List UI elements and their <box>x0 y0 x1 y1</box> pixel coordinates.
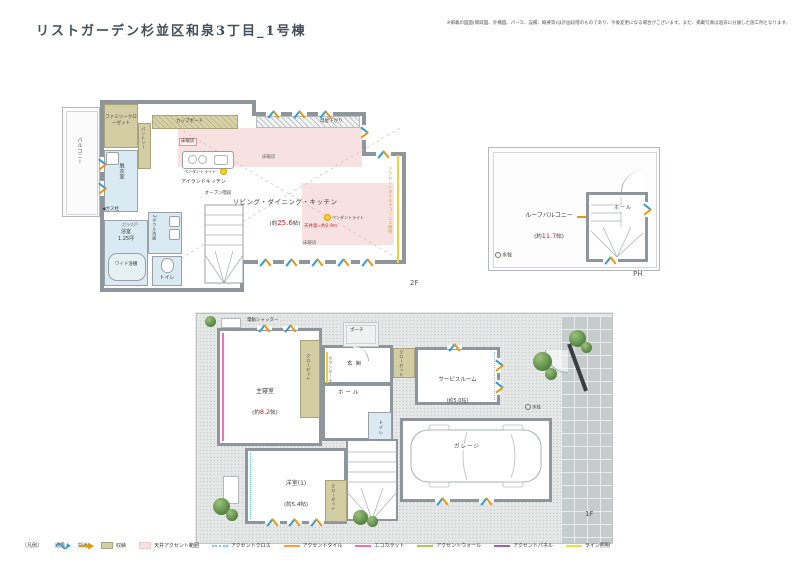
window-marker <box>257 326 272 330</box>
dressing-room-label: 脱衣室 <box>118 163 125 199</box>
garage-label: ガレージ <box>453 444 481 451</box>
window-marker <box>376 152 391 156</box>
western-room-size: (約5.4帖) <box>284 502 308 508</box>
window-marker <box>265 520 280 524</box>
tree <box>545 368 557 380</box>
floor-heating-label: 床暖房 <box>303 241 317 247</box>
balcony-label: バルコニー <box>76 137 83 189</box>
hall-1f-label: ホール <box>338 390 361 397</box>
daylight-arrow-icon <box>78 542 95 550</box>
window-marker <box>266 112 281 116</box>
legend-item-daylight: 採光 <box>78 542 88 549</box>
floorplan-sheet: リストガーデン杉並区和泉3丁目_1号棟 ※掲載の図面(間取図、外構図、パース、設… <box>0 0 800 566</box>
window-marker <box>309 520 324 524</box>
ldk-size: (約25.6帖) <box>270 221 301 227</box>
ph-hall-label: ホール <box>613 205 633 212</box>
legend-label: アクセントタイル <box>303 542 343 549</box>
tap-icon <box>525 404 531 410</box>
pendant-light-label-kitchen: ペンダントライト <box>184 169 216 174</box>
service-room-name: サービスルーム <box>438 377 476 383</box>
porch-label: ポーチ <box>350 328 364 334</box>
legend-label: 収納 <box>116 542 126 549</box>
ecocarat-mark <box>222 333 224 441</box>
tap-icon <box>495 252 501 258</box>
disclaimer-text: ※掲載の図面(間取図、外構図、パース、設備、概要等)は計画段階のものであり、今後… <box>447 20 790 26</box>
legend-title: 〔凡例〕 <box>22 542 42 549</box>
closet-label: クローゼット <box>331 484 336 520</box>
line-lighting-mark <box>397 155 399 263</box>
legend-item-line-lighting: ライン照明 <box>566 542 610 549</box>
island-kitchen-label: アイランドキッチン <box>181 179 226 186</box>
window-marker <box>284 260 299 264</box>
window-marker <box>318 112 333 116</box>
bath-label: 浴室 1.25坪 <box>108 229 144 242</box>
moya-sagari-label: 母屋下がり <box>320 119 343 125</box>
window-marker <box>100 157 104 172</box>
floor-heating-label: 床暖房 <box>262 155 276 161</box>
tree <box>367 516 378 527</box>
floor-ph-tag: PH <box>633 270 643 279</box>
window-marker <box>336 260 351 264</box>
window-marker <box>435 499 450 503</box>
window-marker <box>310 260 325 264</box>
legend: 〔凡例〕 通風 採光 収納 天井アクセント範囲 アクセントクロス <box>22 542 788 549</box>
stairs-1f <box>347 440 397 520</box>
toilet-2f-label: トイレ <box>152 275 182 282</box>
legend-item-ceiling-accent: 天井アクセント範囲 <box>139 542 199 549</box>
window-marker <box>497 380 501 395</box>
master-bedroom-name: 主寝室 <box>256 388 274 395</box>
basin-icon <box>169 229 180 240</box>
window-marker <box>100 181 104 196</box>
legend-item-accent-wall: アクセントウォール <box>417 542 481 549</box>
toilet-icon <box>161 258 174 273</box>
window-marker <box>497 358 501 373</box>
floor-heating-label: 床暖房 <box>179 138 197 146</box>
cooktop-icon <box>198 155 207 164</box>
service-room-label: サービスルーム (約5.0帖) <box>420 366 495 408</box>
legend-label: ライン照明 <box>585 542 610 549</box>
car-icon <box>407 424 545 488</box>
legend-label: 天井アクセント範囲 <box>154 542 199 549</box>
floor-ph-plan: ルーフバルコニー (約11.7帖) ホール 水栓 PH <box>483 142 668 287</box>
tree <box>353 510 368 525</box>
accent-panel-swatch <box>494 545 510 547</box>
pendant-light-icon <box>220 168 227 175</box>
legend-item-accent-cloth: アクセントクロス <box>212 542 271 549</box>
bath-name: 浴室 <box>121 229 131 235</box>
glass-door-label: ガラス戸 <box>122 222 138 227</box>
window-marker <box>283 326 298 330</box>
ceiling-height-label: 天井高=約2.9m <box>304 224 337 230</box>
ecocarat-swatch <box>355 545 371 547</box>
ldk-name: リビング・ダイニング・キッチン <box>233 198 338 206</box>
electric-shutter-label: 電動シャッター <box>247 318 279 324</box>
legend-item-ecocarat: エコカラット <box>355 542 404 549</box>
window-marker <box>287 520 302 524</box>
floor-1f-plan: 主寝室 (約8.2帖) クローゼット 電動シャッター カウンター+玄関収納 玄関… <box>195 306 615 546</box>
floor-2f-plan: バルコニー ファミリークローゼット カップボード パントリー 脱衣室 ◀ガス栓 <box>60 95 420 310</box>
legend-item-ventilation: 通風 <box>55 542 65 549</box>
page-title: リストガーデン杉並区和泉3丁目_1号棟 <box>36 20 307 39</box>
accent-tile-note: アクセントタイル+コーニス照明 <box>388 167 393 263</box>
wall <box>402 152 406 264</box>
accent-wall-swatch <box>417 545 433 547</box>
closet-label: クローゼット <box>399 350 404 377</box>
window-marker <box>362 125 366 140</box>
entrance-label: 玄関 <box>347 361 364 368</box>
wall <box>100 288 244 292</box>
tree <box>581 342 592 353</box>
floor-1f-tag: 1F <box>585 510 593 519</box>
pendant-light-label-living: ペンダントライト <box>332 215 364 220</box>
bath-size: 1.25坪 <box>118 236 134 242</box>
moya-sagari-strip <box>256 116 360 128</box>
window-marker <box>258 260 273 264</box>
accent-cloth-swatch <box>212 545 228 547</box>
ph-water-tap-label: 水栓 <box>495 252 512 259</box>
equipment-pad <box>221 318 241 328</box>
western-room-name: 洋室(1) <box>286 480 307 487</box>
daylight-arrow <box>577 216 586 218</box>
gas-outlet-label: ◀ガス栓 <box>102 207 119 213</box>
window-marker <box>603 258 618 262</box>
pendant-light-icon <box>324 214 331 221</box>
closet-label: クローゼット <box>306 354 311 406</box>
roof-balcony-size: (約11.7帖) <box>534 234 564 240</box>
cooktop-icon <box>188 155 197 164</box>
legend-label: アクセントウォール <box>436 542 481 549</box>
roof-balcony-label: ルーフバルコニー (約11.7帖) <box>501 202 597 244</box>
washer-icon <box>106 152 119 165</box>
window-marker <box>447 345 462 349</box>
roof-balcony-name: ルーフバルコニー <box>525 212 573 219</box>
legend-item-accent-tile: アクセントタイル <box>284 542 343 549</box>
legend-label: アクセントパネル <box>513 542 553 549</box>
tree <box>205 316 216 327</box>
storage-swatch <box>101 542 113 549</box>
window-marker <box>360 260 375 264</box>
legend-label: アクセントクロス <box>231 542 271 549</box>
accent-tile-swatch <box>284 545 300 547</box>
family-closet-label: ファミリークローゼット <box>104 115 138 127</box>
window-marker <box>479 499 494 503</box>
ventilation-wave-arrow-icon <box>55 541 72 550</box>
tap-1f-label: 水栓 <box>525 404 541 411</box>
legend-item-accent-panel: アクセントパネル <box>494 542 553 549</box>
ldk-label: リビング・ダイニング・キッチン (約25.6帖) <box>210 189 360 231</box>
window-marker <box>645 202 649 217</box>
line-lighting-swatch <box>566 545 582 547</box>
master-bedroom-label: 主寝室 (約8.2帖) <box>225 378 305 420</box>
legend-item-storage: 収納 <box>101 542 126 549</box>
two-bowl-vanity-label: 2ボウル洗面 <box>152 215 157 253</box>
wide-tub-label: ワイド浴槽 <box>108 262 144 268</box>
legend-label: エコカラット <box>374 542 404 549</box>
service-room-size: (約5.0帖) <box>447 398 469 404</box>
window-marker <box>292 112 307 116</box>
cupboard-label: カップボード <box>176 119 203 125</box>
sink-icon <box>214 155 228 165</box>
master-bedroom-size: (約8.2帖) <box>252 410 278 416</box>
tree <box>226 509 238 521</box>
basin-icon <box>169 216 180 227</box>
pantry-label: パントリー <box>141 127 146 167</box>
ceiling-accent-swatch <box>139 542 151 549</box>
floor-2f-tag: 2F <box>410 279 418 288</box>
